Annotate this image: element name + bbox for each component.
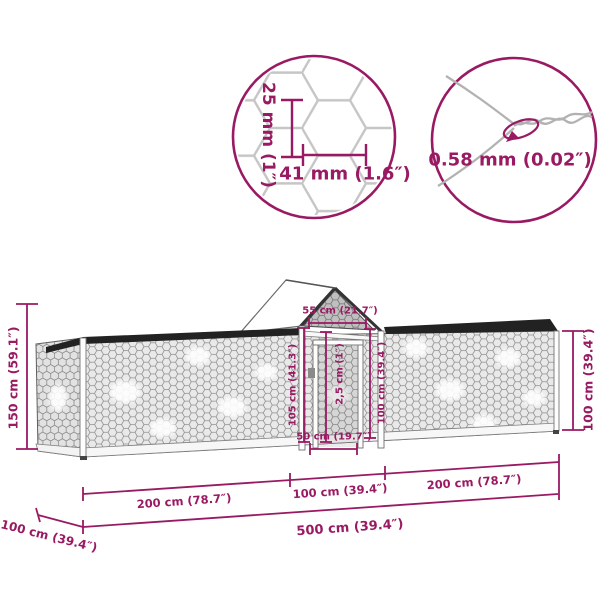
coop-top-width-label: 55 cm (21.7″)	[302, 306, 378, 317]
wire-detail-callout: 0.58 mm (0.02″)	[428, 58, 596, 222]
mesh-detail-callout: 25 mm (1″) 41 mm (1.6″)	[233, 56, 411, 220]
overall-height-label: 150 cm (59.1″)	[6, 326, 21, 429]
corner-post-left	[80, 338, 86, 457]
foot-right	[553, 430, 559, 434]
middle-length-label: 100 cm (39.4″)	[292, 481, 388, 502]
depth-label: 100 cm (39.4″)	[0, 517, 99, 555]
right-run-length-label: 200 cm (78.7″)	[426, 472, 522, 493]
total-length-label: 500 cm (39.4″)	[296, 517, 404, 539]
coop-right-height-label: 100 cm (39.4″)	[377, 342, 388, 424]
product-dimension-diagram: 25 mm (1″) 41 mm (1.6″) 0.58 mm (0.02″)	[0, 0, 600, 600]
depth-dimension: 100 cm (39.4″)	[0, 508, 99, 555]
coop-left-height-label: 105 cm (41.3″)	[288, 344, 299, 426]
run-height-dimension: 100 cm (39.4″)	[562, 328, 596, 431]
segment-lengths-dimension: 200 cm (78.7″) 100 cm (39.4″) 200 cm (78…	[83, 454, 559, 511]
foot-left	[80, 456, 87, 460]
door-latch	[308, 368, 315, 378]
corner-post-right	[554, 331, 559, 431]
door-width-label: 50 cm (19.7″)	[296, 432, 372, 443]
mesh-cell-height-label: 25 mm (1″)	[258, 82, 278, 188]
diagram-svg: 25 mm (1″) 41 mm (1.6″) 0.58 mm (0.02″)	[0, 0, 600, 600]
overall-height-dimension: 150 cm (59.1″)	[6, 304, 39, 449]
wire-diameter-label: 0.58 mm (0.02″)	[428, 150, 591, 171]
mesh-cell-width-label: 41 mm (1.6″)	[279, 164, 410, 185]
left-run-length-label: 200 cm (78.7″)	[136, 491, 232, 512]
run-height-label: 100 cm (39.4″)	[581, 328, 596, 431]
frame-thickness-label: 2,5 cm (1″)	[335, 343, 346, 405]
